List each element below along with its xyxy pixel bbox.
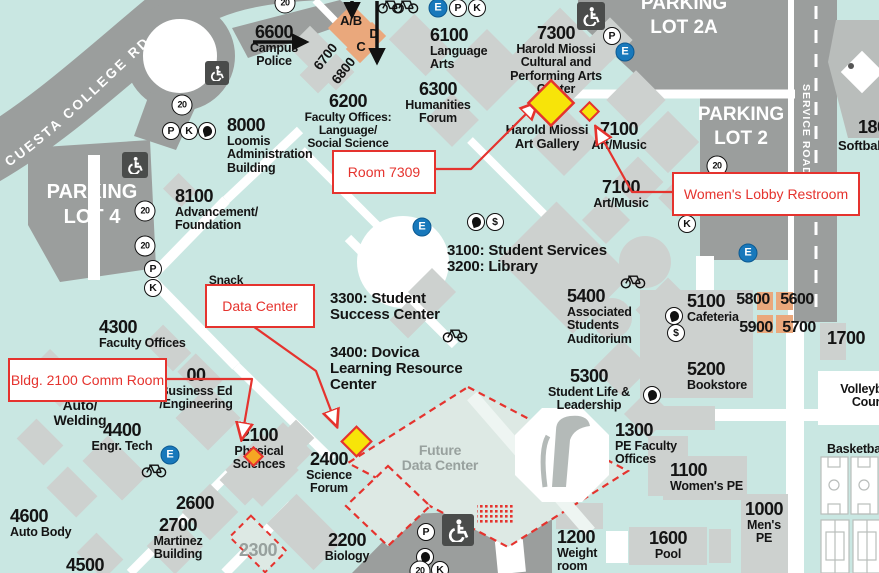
bldg-2600-number: 2600 xyxy=(176,494,214,513)
parking-icon: P xyxy=(144,260,162,278)
route-20-icon-glyph: 20 xyxy=(177,101,186,110)
bldg-4300-faculty-offices: 4300Faculty Offices xyxy=(99,318,186,350)
bldg-5600-number: 5600 xyxy=(780,292,814,309)
bldg-6600-campus-police: 6600Campus Police xyxy=(250,23,298,69)
parking-icon-glyph: P xyxy=(454,3,461,14)
bldg-6100-language-arts: 6100Language Arts xyxy=(430,26,487,72)
bldg-2700-martinez-number: 2700 xyxy=(153,516,202,535)
shuttle-stop-ab: A/B xyxy=(340,14,362,28)
bldg-5100-cafeteria: 5100Cafeteria xyxy=(687,292,739,324)
bldg-7100-art-music-lower-number: 7100 xyxy=(593,178,648,197)
parking-lot-2a-label: PARKING LOT 2A xyxy=(641,0,727,40)
bldg-3300-success-center: 3300: Student Success Center xyxy=(330,291,440,323)
atm-icon: $ xyxy=(667,324,685,342)
bldg-3400-learning-resource-label: 3400: Dovica Learning Resource Center xyxy=(330,345,462,393)
bldg-2700-martinez-label: Martinez Building xyxy=(153,535,202,562)
bldg-6200-faculty-offices: 6200Faculty Offices: Language/ Social Sc… xyxy=(305,92,392,149)
bldg-1800: 1800 xyxy=(858,118,879,137)
bldg-business-ed-label: Business Ed /Engineering xyxy=(159,385,232,412)
bldg-4400-engr-tech-number: 4400 xyxy=(92,421,153,440)
atm-icon-glyph: $ xyxy=(492,217,498,228)
parking-lot-2-label: PARKING LOT 2 xyxy=(698,103,784,151)
route-20-icon-glyph: 20 xyxy=(140,207,149,216)
bldg-3100-3200: 3100: Student Services 3200: Library xyxy=(447,243,607,275)
bldg-1100-womens-pe-number: 1100 xyxy=(670,461,743,480)
bldg-4300-faculty-offices-label: Faculty Offices xyxy=(99,337,186,350)
route-20-icon-glyph: 20 xyxy=(712,162,721,171)
parking-icon-glyph: P xyxy=(149,264,156,275)
bldg-8100-advancement-label: Advancement/ Foundation xyxy=(175,206,258,233)
bldg-5900: 5900 xyxy=(739,320,773,337)
bldg-8000-loomis-admin: 8000Loomis Administration Building xyxy=(227,116,312,175)
route-20-icon: 20 xyxy=(135,201,156,222)
campus-map: CUESTA COLLEGE RD 6600Campus PoliceA/BDC… xyxy=(0,0,879,573)
kiosk-icon-glyph: K xyxy=(185,126,193,137)
bldg-6300-humanities-forum-number: 6300 xyxy=(405,80,470,99)
bldg-5400-auditorium-number: 5400 xyxy=(567,287,632,306)
bldg-5200-bookstore-number: 5200 xyxy=(687,360,747,379)
kiosk-icon: K xyxy=(144,279,162,297)
volleyball-court-label: Volleyball Court xyxy=(840,383,879,410)
bldg-6300-humanities-forum-label: Humanities Forum xyxy=(405,99,470,126)
phone-icon xyxy=(643,386,661,404)
bldg-2200-biology-label: Biology xyxy=(325,550,369,563)
atm-icon: $ xyxy=(486,213,504,231)
phone-icon xyxy=(467,213,485,231)
callout-bldg-2100-comm-room: Bldg. 2100 Comm Room xyxy=(8,358,167,402)
bldg-1300-pe-faculty-label: PE Faculty Offices xyxy=(615,440,677,467)
bldg-2100-physical-sciences: 2100Physical Sciences xyxy=(233,426,286,472)
bldg-7100-art-music-lower: 7100Art/Music xyxy=(593,178,648,210)
bldg-business-ed: 00Business Ed /Engineering xyxy=(159,366,232,412)
parking-icon: P xyxy=(417,523,435,541)
shuttle-stop-ab-label: A/B xyxy=(340,14,362,28)
bldg-5300-student-life: 5300Student Life & Leadership xyxy=(548,367,630,413)
kiosk-icon-glyph: K xyxy=(149,283,157,294)
kiosk-icon-glyph: K xyxy=(683,219,691,230)
softball-field-label: Softball xyxy=(838,139,879,153)
bldg-1100-womens-pe: 1100Women's PE xyxy=(670,461,743,493)
kiosk-icon: K xyxy=(678,215,696,233)
bldg-1600-pool-number: 1600 xyxy=(649,529,687,548)
bldg-2200-biology-number: 2200 xyxy=(325,531,369,550)
bldg-2300-number: 2300 xyxy=(239,541,277,560)
bldg-6600-campus-police-label: Campus Police xyxy=(250,42,298,69)
bldg-7100-art-music-lower-label: Art/Music xyxy=(593,197,648,210)
bldg-1000-mens-pe-label: Men's PE xyxy=(745,519,783,546)
bldg-1200-weight-room-label: Weight room xyxy=(557,547,597,573)
bldg-6100-language-arts-label: Language Arts xyxy=(430,45,487,72)
bldg-1700-number: 1700 xyxy=(827,329,865,348)
accessible-parking-icon xyxy=(577,2,605,30)
bldg-5800-number: 5800 xyxy=(736,292,770,309)
bldg-4600-auto-body-number: 4600 xyxy=(10,507,71,526)
kiosk-icon-glyph: K xyxy=(436,565,444,573)
bldg-1200-weight-room: 1200Weight room xyxy=(557,528,597,573)
emergency-phone-icon-glyph: E xyxy=(166,450,173,461)
bldg-5600: 5600 xyxy=(780,292,814,309)
emergency-phone-icon: E xyxy=(413,218,432,237)
route-20-icon: 20 xyxy=(135,236,156,257)
shuttle-stop-d: D xyxy=(369,27,378,41)
bldg-5700-number: 5700 xyxy=(782,320,816,337)
bicycle-icon xyxy=(393,0,419,14)
bldg-2200-biology: 2200Biology xyxy=(325,531,369,563)
parking-lot-4-label: PARKING LOT 4 xyxy=(47,180,138,230)
bldg-5300-student-life-number: 5300 xyxy=(548,367,630,386)
bldg-1700: 1700 xyxy=(827,329,865,348)
bldg-5100-cafeteria-number: 5100 xyxy=(687,292,739,311)
bldg-3400-learning-resource: 3400: Dovica Learning Resource Center xyxy=(330,345,462,393)
phone-icon xyxy=(198,122,216,140)
accessible-parking-icon xyxy=(122,152,148,178)
bldg-3100-3200-label: 3100: Student Services 3200: Library xyxy=(447,243,607,275)
bldg-1300-pe-faculty: 1300PE Faculty Offices xyxy=(615,421,677,467)
bldg-1200-weight-room-number: 1200 xyxy=(557,528,597,547)
parking-icon-glyph: P xyxy=(167,126,174,137)
bldg-4500: 4500 xyxy=(66,556,104,573)
bldg-5800: 5800 xyxy=(736,292,770,309)
bicycle-icon xyxy=(442,327,468,343)
parking-icon-glyph: P xyxy=(608,31,615,42)
bldg-2400-science-forum-label: Science Forum xyxy=(306,469,352,496)
bldg-7100-art-music-upper: 7100Art/Music xyxy=(591,120,646,152)
callout-womens-lobby-restroom: Women's Lobby Restroom xyxy=(672,172,860,216)
kiosk-icon-glyph: K xyxy=(473,3,481,14)
atm-icon-glyph: $ xyxy=(673,328,679,339)
shuttle-stop-c-label: C xyxy=(356,40,365,54)
bldg-1000-mens-pe-number: 1000 xyxy=(745,500,783,519)
volleyball-court: Volleyball Court xyxy=(840,383,879,410)
harold-miossi-art-gallery-label: Harold Miossi Art Gallery xyxy=(506,123,589,151)
kiosk-icon: K xyxy=(180,122,198,140)
bldg-4500-number: 4500 xyxy=(66,556,104,573)
bldg-4300-faculty-offices-number: 4300 xyxy=(99,318,186,337)
emergency-phone-icon-glyph: E xyxy=(621,47,628,58)
bldg-2100-physical-sciences-number: 2100 xyxy=(233,426,286,445)
route-20-icon-glyph: 20 xyxy=(280,0,289,8)
softball-field: Softball xyxy=(838,139,879,153)
future-data-center: Future Data Center xyxy=(402,443,478,473)
bldg-6200-faculty-offices-label: Faculty Offices: Language/ Social Scienc… xyxy=(305,111,392,149)
shuttle-stop-d-label: D xyxy=(369,27,378,41)
bldg-6600-campus-police-number: 6600 xyxy=(250,23,298,42)
bldg-1600-pool-label: Pool xyxy=(649,548,687,561)
bicycle-icon xyxy=(620,273,646,289)
bldg-8100-advancement-number: 8100 xyxy=(175,187,258,206)
bldg-4400-engr-tech-label: Engr. Tech xyxy=(92,440,153,453)
route-20-icon-glyph: 20 xyxy=(140,242,149,251)
bldg-7100-art-music-upper-number: 7100 xyxy=(591,120,646,139)
bldg-7100-art-music-upper-label: Art/Music xyxy=(591,139,646,152)
bldg-5200-bookstore-label: Bookstore xyxy=(687,379,747,392)
basketball-courts-label: Basketball xyxy=(827,443,879,456)
bldg-7300-performing-arts-label: Harold Miossi Cultural and Performing Ar… xyxy=(510,43,602,96)
shuttle-stop-c: C xyxy=(356,40,365,54)
route-20-icon: 20 xyxy=(172,95,193,116)
bldg-6300-humanities-forum: 6300Humanities Forum xyxy=(405,80,470,126)
kiosk-icon: K xyxy=(431,561,449,573)
callout-room-7309: Room 7309 xyxy=(332,150,436,194)
bldg-5300-student-life-label: Student Life & Leadership xyxy=(548,386,630,413)
bldg-4400-engr-tech: 4400Engr. Tech xyxy=(92,421,153,453)
bldg-2700-martinez: 2700Martinez Building xyxy=(153,516,202,562)
bldg-5400-auditorium-label: Associated Students Auditorium xyxy=(567,306,632,346)
bldg-4600-auto-body: 4600Auto Body xyxy=(10,507,71,539)
bldg-2400-science-forum: 2400Science Forum xyxy=(306,450,352,496)
parking-icon: P xyxy=(162,122,180,140)
route-20-icon-glyph: 20 xyxy=(415,567,424,573)
bldg-2600: 2600 xyxy=(176,494,214,513)
parking-icon: P xyxy=(603,27,621,45)
bldg-5200-bookstore: 5200Bookstore xyxy=(687,360,747,392)
sculpture-plaza xyxy=(515,408,609,502)
harold-miossi-art-gallery: Harold Miossi Art Gallery xyxy=(506,123,589,151)
bldg-5400-auditorium: 5400Associated Students Auditorium xyxy=(567,287,632,346)
bicycle-icon xyxy=(141,462,167,478)
roundabout xyxy=(134,10,226,102)
bldg-5900-number: 5900 xyxy=(739,320,773,337)
bldg-1800-number: 1800 xyxy=(858,118,879,137)
phone-icon xyxy=(665,307,683,325)
basketball-courts: Basketball xyxy=(827,443,879,456)
emergency-phone-icon: E xyxy=(739,244,758,263)
bldg-1100-womens-pe-label: Women's PE xyxy=(670,480,743,493)
emergency-phone-icon-glyph: E xyxy=(434,3,441,14)
bldg-8100-advancement: 8100Advancement/ Foundation xyxy=(175,187,258,233)
bldg-4600-auto-body-label: Auto Body xyxy=(10,526,71,539)
bldg-6200-faculty-offices-number: 6200 xyxy=(305,92,392,111)
bldg-7300-performing-arts: 7300Harold Miossi Cultural and Performin… xyxy=(510,24,602,96)
emergency-phone-icon-glyph: E xyxy=(744,248,751,259)
bldg-2400-science-forum-number: 2400 xyxy=(306,450,352,469)
bldg-6100-language-arts-number: 6100 xyxy=(430,26,487,45)
bldg-1000-mens-pe: 1000Men's PE xyxy=(745,500,783,546)
bldg-1300-pe-faculty-number: 1300 xyxy=(615,421,677,440)
emergency-phone-icon: E xyxy=(616,43,635,62)
bldg-2300: 2300 xyxy=(239,541,277,560)
bldg-5100-cafeteria-label: Cafeteria xyxy=(687,311,739,324)
accessible-parking-icon xyxy=(205,61,229,85)
bldg-8000-loomis-admin-label: Loomis Administration Building xyxy=(227,135,312,175)
bldg-1600-pool: 1600Pool xyxy=(649,529,687,561)
future-data-center-label: Future Data Center xyxy=(402,443,478,473)
bldg-2100-physical-sciences-label: Physical Sciences xyxy=(233,445,286,472)
emergency-phone-icon-glyph: E xyxy=(418,222,425,233)
accessible-parking-icon xyxy=(442,514,474,546)
service-road-label: SERVICE ROAD xyxy=(800,84,812,176)
bldg-business-ed-number: 00 xyxy=(159,366,232,385)
bldg-3300-success-center-label: 3300: Student Success Center xyxy=(330,291,440,323)
parking-icon-glyph: P xyxy=(422,527,429,538)
bldg-8000-loomis-admin-number: 8000 xyxy=(227,116,312,135)
callout-data-center: Data Center xyxy=(205,284,315,328)
bldg-5700: 5700 xyxy=(782,320,816,337)
